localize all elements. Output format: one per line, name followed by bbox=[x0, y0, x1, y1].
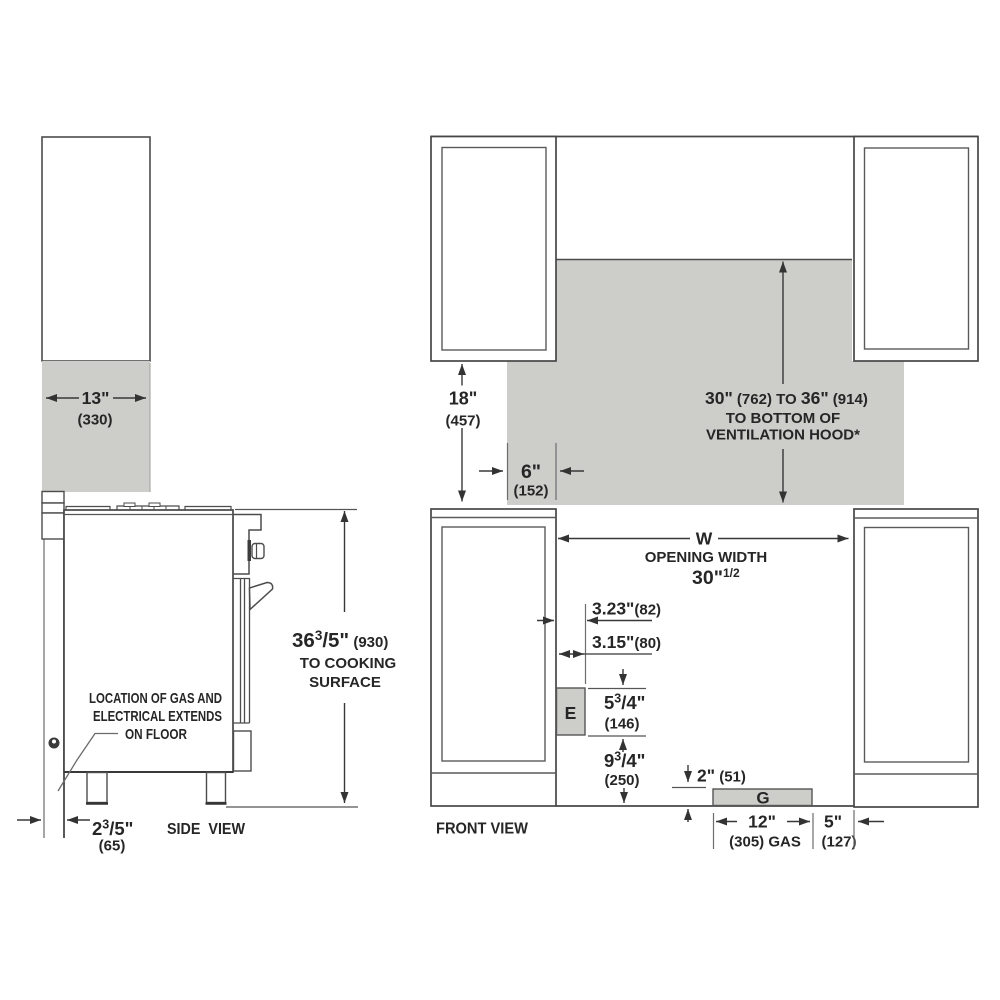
svg-text:(457): (457) bbox=[445, 413, 480, 430]
svg-text:LOCATION OF GAS AND: LOCATION OF GAS AND bbox=[89, 690, 222, 707]
svg-text:6": 6" bbox=[521, 461, 541, 483]
svg-text:SIDE VIEW: SIDE VIEW bbox=[167, 821, 245, 838]
svg-text:30"1/2: 30"1/2 bbox=[692, 566, 740, 589]
svg-text:12": 12" bbox=[748, 812, 776, 832]
svg-text:3.23"(82): 3.23"(82) bbox=[592, 599, 661, 619]
svg-text:(152): (152) bbox=[513, 483, 548, 500]
svg-text:TO BOTTOM OF: TO BOTTOM OF bbox=[726, 410, 840, 427]
svg-text:VENTILATION HOOD*: VENTILATION HOOD* bbox=[706, 427, 860, 444]
svg-text:TO COOKING: TO COOKING bbox=[300, 655, 396, 672]
svg-text:(330): (330) bbox=[77, 412, 112, 429]
svg-text:18": 18" bbox=[449, 389, 478, 409]
svg-text:(305) GAS: (305) GAS bbox=[729, 834, 801, 851]
svg-text:23/5": 23/5" bbox=[92, 818, 133, 840]
svg-text:13": 13" bbox=[82, 388, 110, 408]
svg-text:E: E bbox=[565, 703, 577, 723]
svg-text:3.15"(80): 3.15"(80) bbox=[592, 632, 661, 652]
svg-text:363/5" (930): 363/5" (930) bbox=[292, 628, 388, 652]
svg-text:53/4": 53/4" bbox=[604, 692, 645, 714]
svg-text:5": 5" bbox=[824, 812, 842, 832]
svg-text:2" (51): 2" (51) bbox=[697, 766, 746, 786]
svg-text:(127): (127) bbox=[821, 834, 856, 851]
svg-text:(250): (250) bbox=[604, 772, 639, 789]
svg-text:30" (762) TO 36" (914): 30" (762) TO 36" (914) bbox=[705, 388, 868, 408]
svg-text:FRONT VIEW: FRONT VIEW bbox=[436, 821, 528, 838]
svg-text:(65): (65) bbox=[99, 838, 126, 855]
svg-text:93/4": 93/4" bbox=[604, 750, 645, 772]
svg-text:G: G bbox=[756, 789, 769, 808]
svg-text:OPENING WIDTH: OPENING WIDTH bbox=[645, 549, 768, 566]
svg-text:ON FLOOR: ON FLOOR bbox=[125, 726, 187, 743]
svg-text:SURFACE: SURFACE bbox=[309, 674, 381, 691]
svg-text:W: W bbox=[696, 529, 713, 549]
svg-text:ELECTRICAL EXTENDS: ELECTRICAL EXTENDS bbox=[93, 708, 222, 725]
svg-text:(146): (146) bbox=[604, 716, 639, 733]
